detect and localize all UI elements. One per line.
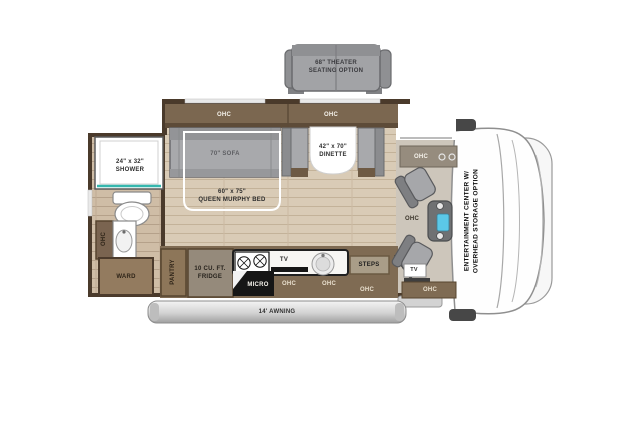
ohc-kitchen-left-label: OHC — [282, 280, 296, 288]
ohc-cab-dash-label: OHC — [414, 153, 428, 161]
ohc-top-right-label: OHC — [324, 111, 338, 119]
dinette-label: 42" x 70" DINETTE — [319, 143, 347, 159]
awning-label: 14' AWNING — [259, 308, 296, 316]
ward-label: WARD — [116, 273, 135, 281]
fridge-label: 10 CU. FT. FRIDGE — [194, 265, 225, 281]
tv-kitchen-label: TV — [280, 256, 288, 264]
sofa-label: 70" SOFA — [210, 150, 240, 158]
microwave-label: MICRO — [247, 281, 268, 289]
ohc-cab-console-label: OHC — [405, 215, 419, 223]
cab-console — [428, 201, 452, 241]
steps-label: STEPS — [359, 261, 380, 269]
ohc-top-left-label: OHC — [217, 111, 231, 119]
ohc-entry-label: OHC — [360, 286, 374, 294]
floorplan-canvas: 68" THEATER SEATING OPTION OHC OHC 24" x… — [0, 0, 640, 436]
kitchen-sink-icon — [312, 253, 334, 275]
ohc-vanity-label: OHC — [100, 232, 108, 246]
murphy-bed-label: 60" x 75" QUEEN MURPHY BED — [198, 188, 265, 204]
tv-kitchen-icon — [271, 267, 308, 272]
entertainment-center-label: ENTERTAINMENT CENTER W/ OVERHEAD STORAGE… — [464, 169, 481, 273]
overhead-cabinet-strip — [165, 104, 398, 128]
cab-dash-cabinet — [400, 146, 457, 167]
tv-cab-label: TV — [410, 266, 418, 274]
theater-option-label: 68" THEATER SEATING OPTION — [309, 59, 363, 75]
shower-label: 24" x 32" SHOWER — [116, 158, 145, 174]
ohc-kitchen-right-label: OHC — [322, 280, 336, 288]
pantry-label: PANTRY — [169, 259, 177, 285]
stove-icon — [235, 252, 269, 273]
ohc-cab-rear-label: OHC — [423, 286, 437, 294]
side-mirror-bottom-icon — [449, 309, 476, 321]
